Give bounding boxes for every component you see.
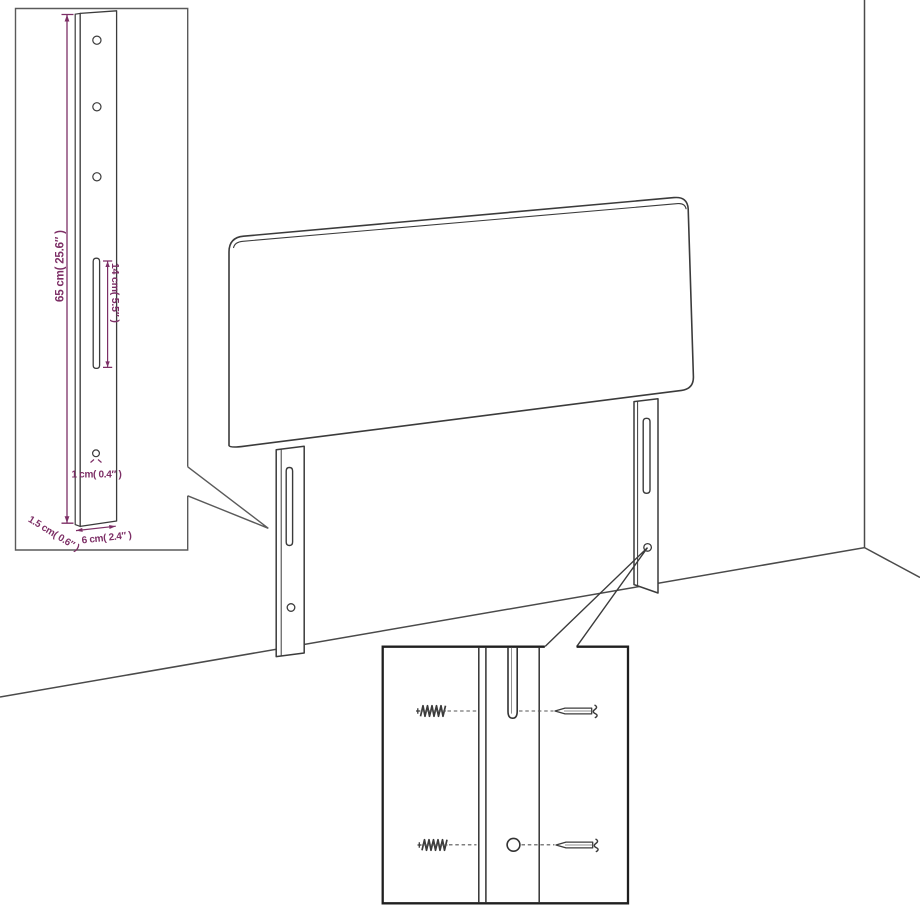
headboard-leg-right: [634, 399, 658, 593]
headboard-leg-left: [276, 446, 304, 656]
dowel-hole-icon: [507, 838, 520, 851]
headboard-assembly-illustration: 65 cm( 25.6″ ) 14 cm( 5.5″ ) 1 cm( 0.4″ …: [0, 0, 920, 920]
dowel-hole-icon: [287, 604, 295, 612]
callout-wedge: [188, 467, 269, 529]
mounting-slot-icon: [286, 468, 292, 546]
dimension-height-label: 65 cm( 25.6″ ): [55, 230, 67, 302]
illustration-canvas: 65 cm( 25.6″ ) 14 cm( 5.5″ ) 1 cm( 0.4″ …: [0, 0, 920, 920]
hardware-callout-lines: [545, 548, 648, 647]
hardware-detail-inset: [383, 647, 628, 904]
mounting-slot-icon: [93, 258, 99, 368]
dimension-hole-label: 1 cm( 0.4″ ): [71, 470, 121, 481]
headboard-panel: [229, 197, 693, 447]
dimension-slot-label: 14 cm( 5.5″ ): [109, 263, 121, 323]
panel-outline: [229, 197, 693, 447]
mounting-slot-icon: [643, 418, 650, 493]
